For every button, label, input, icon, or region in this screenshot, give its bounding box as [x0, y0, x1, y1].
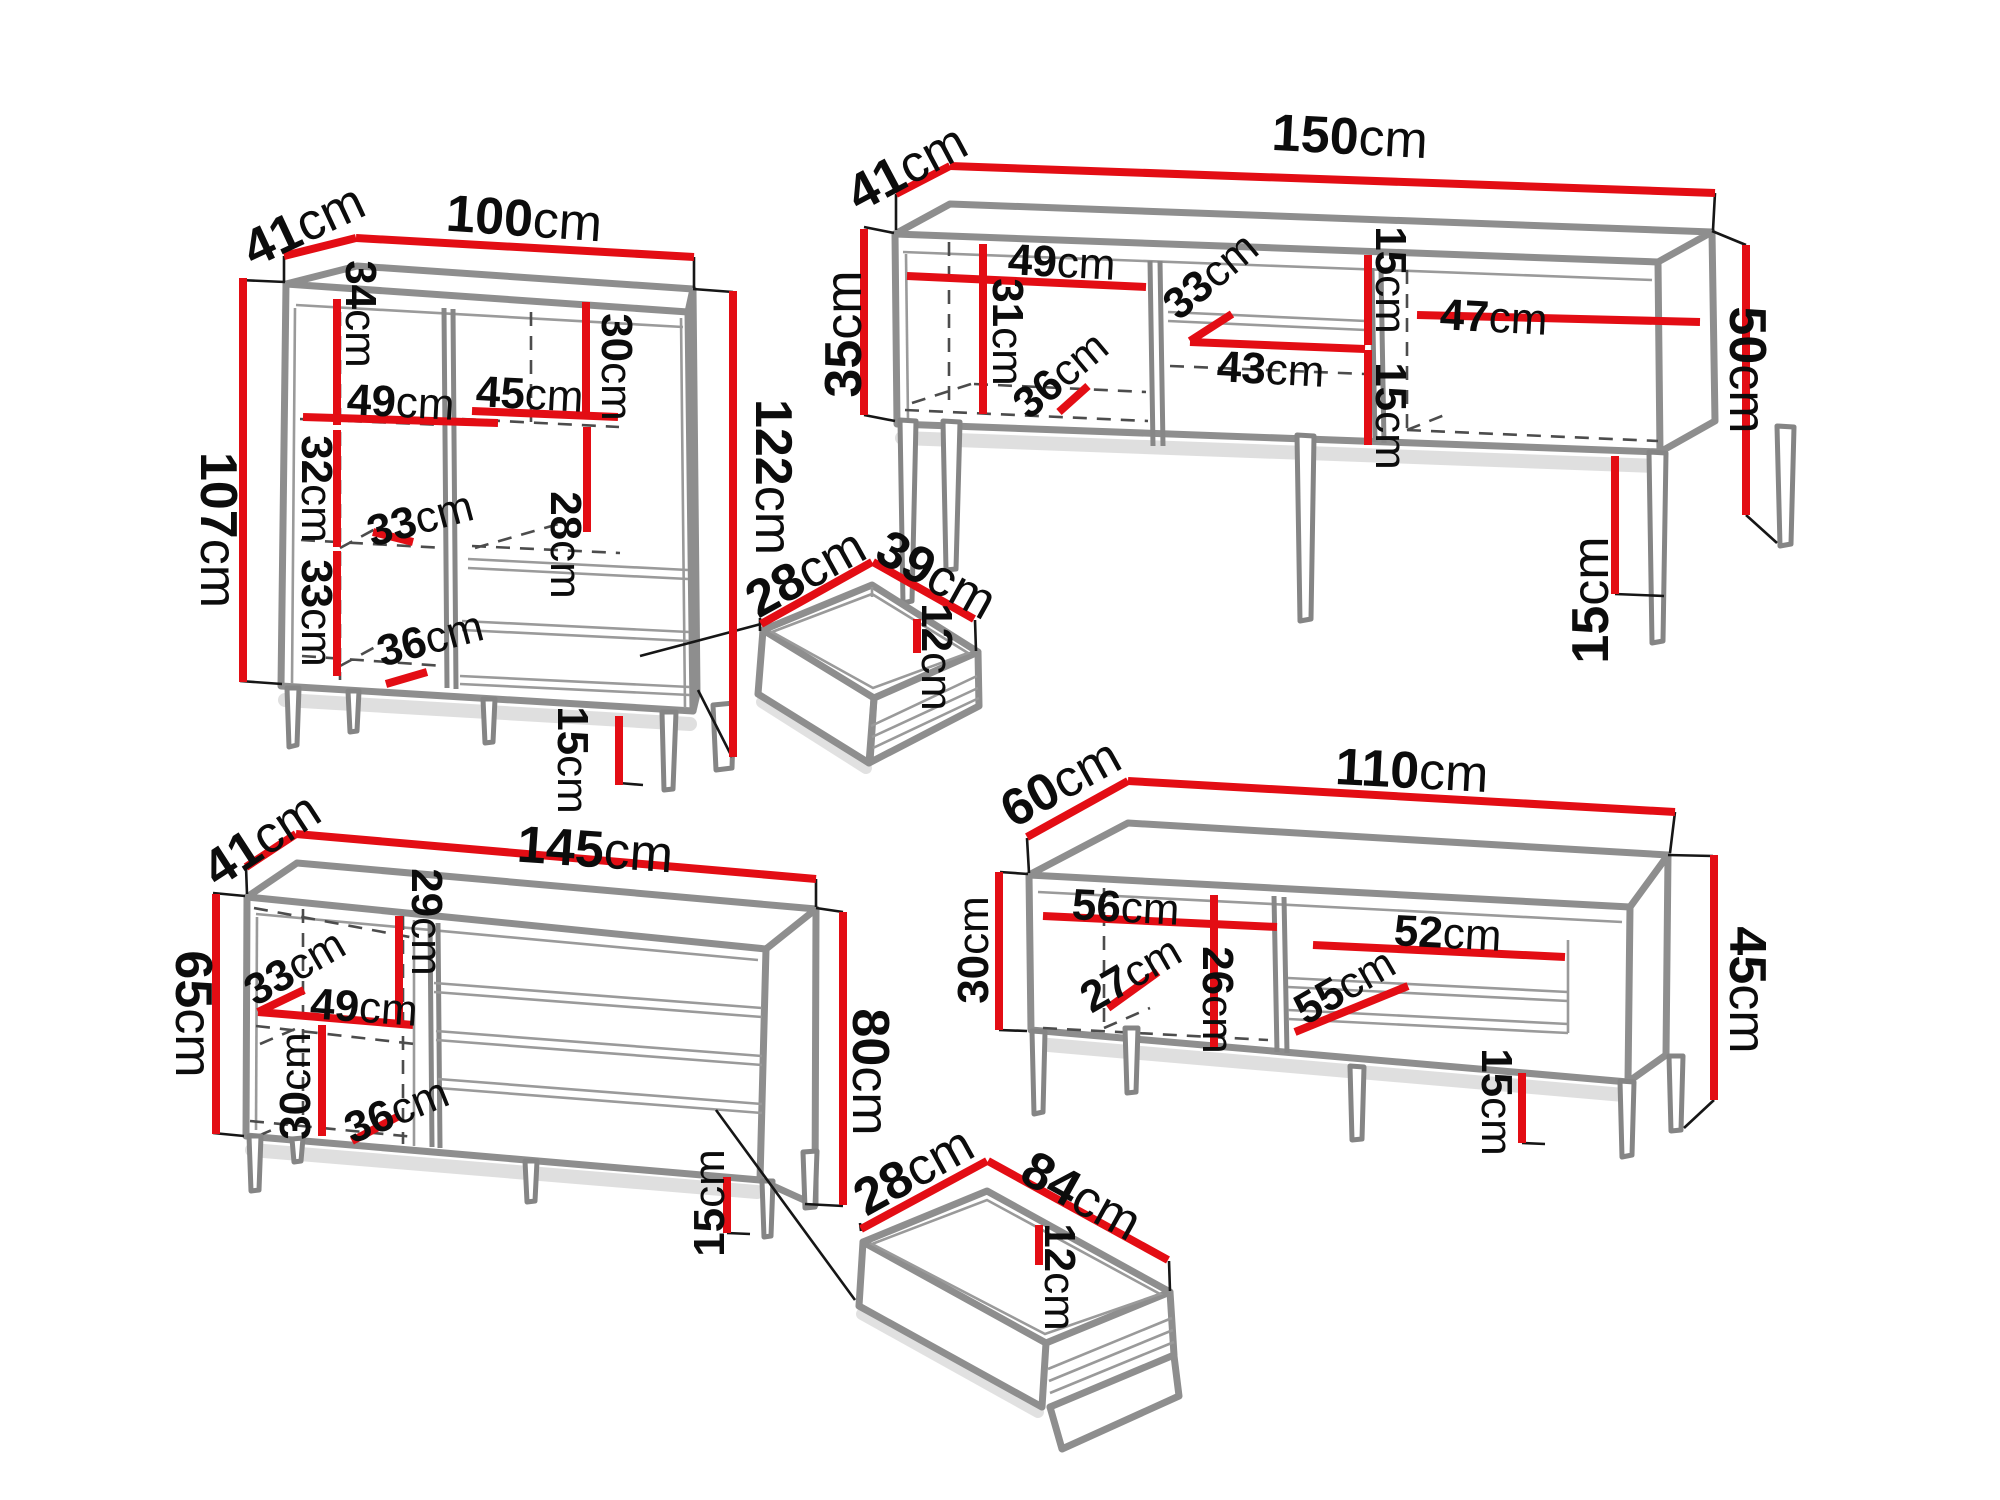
svg-text:26cm: 26cm: [1193, 946, 1242, 1054]
svg-text:52cm: 52cm: [1393, 906, 1503, 961]
svg-text:33cm: 33cm: [292, 559, 341, 667]
svg-text:15cm: 15cm: [1366, 226, 1415, 334]
svg-text:80cm: 80cm: [841, 1008, 899, 1135]
svg-text:45cm: 45cm: [1718, 926, 1776, 1053]
svg-text:32cm: 32cm: [292, 435, 341, 543]
svg-text:145cm: 145cm: [515, 816, 675, 885]
svg-text:49cm: 49cm: [309, 979, 420, 1035]
svg-text:45cm: 45cm: [475, 367, 585, 422]
svg-text:15cm: 15cm: [548, 706, 597, 814]
svg-text:49cm: 49cm: [346, 375, 456, 430]
svg-text:31cm: 31cm: [983, 278, 1032, 386]
svg-text:35cm: 35cm: [815, 270, 873, 397]
svg-text:50cm: 50cm: [1718, 306, 1776, 433]
svg-text:30cm: 30cm: [949, 896, 998, 1004]
svg-text:34cm: 34cm: [336, 260, 385, 368]
svg-text:30cm: 30cm: [271, 1032, 320, 1140]
svg-text:122cm: 122cm: [744, 399, 802, 555]
svg-text:100cm: 100cm: [444, 185, 604, 254]
svg-text:47cm: 47cm: [1439, 290, 1549, 345]
svg-text:30cm: 30cm: [592, 313, 641, 421]
svg-text:15cm: 15cm: [685, 1149, 734, 1257]
svg-text:12cm: 12cm: [912, 603, 961, 711]
svg-text:65cm: 65cm: [164, 950, 222, 1077]
svg-text:29cm: 29cm: [402, 868, 451, 976]
svg-text:150cm: 150cm: [1270, 104, 1429, 170]
svg-text:107cm: 107cm: [189, 452, 247, 608]
svg-text:12cm: 12cm: [1035, 1223, 1084, 1331]
svg-text:28cm: 28cm: [541, 491, 590, 599]
svg-text:43cm: 43cm: [1216, 342, 1326, 397]
svg-text:15cm: 15cm: [1366, 362, 1415, 470]
svg-text:15cm: 15cm: [1562, 536, 1620, 663]
svg-text:110cm: 110cm: [1334, 738, 1490, 804]
svg-text:15cm: 15cm: [1472, 1048, 1521, 1156]
